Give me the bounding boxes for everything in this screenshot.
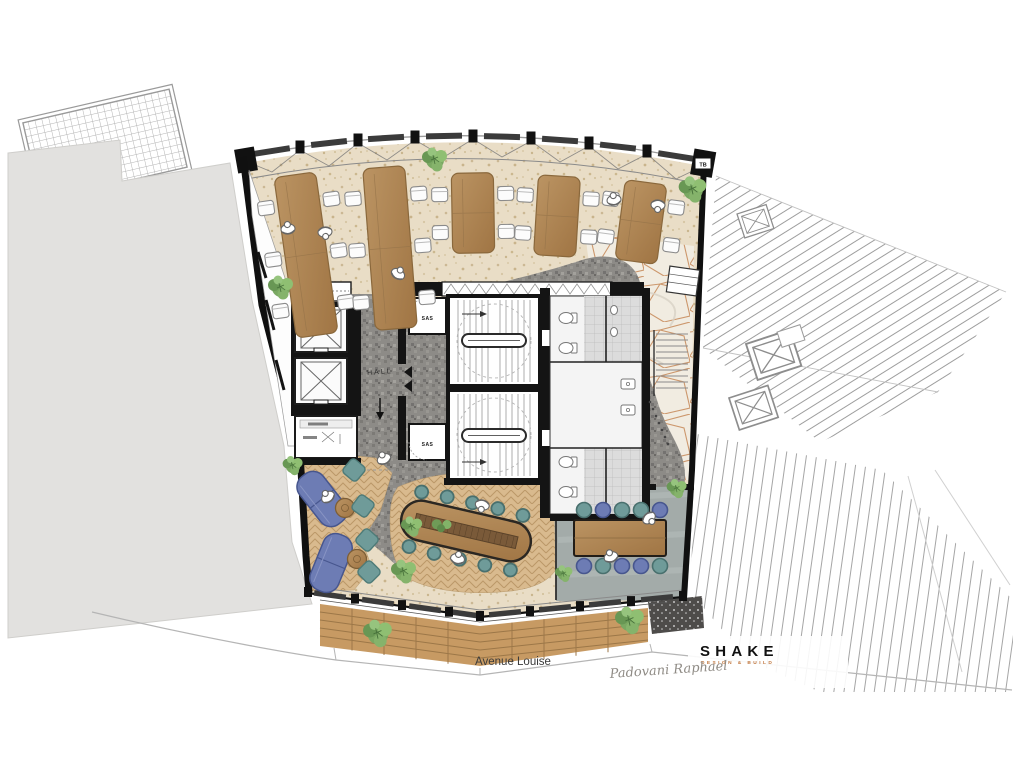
wall-cabinet (666, 266, 699, 296)
neighbor-roof-hatch (690, 176, 1013, 692)
meeting-chair (634, 559, 649, 574)
urinal-icon (611, 306, 618, 315)
street-label: Avenue Louise (475, 656, 551, 668)
toilet-icon (559, 457, 577, 468)
meeting-chair (615, 503, 630, 518)
sink-icon (621, 405, 635, 415)
sas-label: SAS (422, 442, 434, 448)
meeting-chair (615, 559, 630, 574)
sas-vestibule-bottom: SAS (409, 424, 446, 460)
logo-text: SHAKE (700, 643, 778, 660)
meeting-chair (653, 559, 668, 574)
roof-skylight-icon (729, 385, 778, 430)
wc-area (550, 288, 650, 521)
gravel-strip (648, 596, 704, 634)
meeting-chair (577, 503, 592, 518)
meeting-chair (577, 559, 592, 574)
tb-label: TB (699, 163, 706, 169)
elevator-icon (295, 358, 347, 404)
staircase-bottom (448, 390, 540, 480)
toilet-icon (559, 313, 577, 324)
floor-plan-page: SAS SAS HALL (0, 0, 1024, 768)
staircase-top (448, 296, 540, 386)
tb-marker: TB (695, 158, 711, 169)
toilet-icon (559, 343, 577, 354)
sink-icon (621, 379, 635, 389)
storage-room (295, 416, 357, 458)
meeting-chair (596, 503, 611, 518)
meeting-room-furniture (574, 503, 668, 574)
urinal-icon (611, 328, 618, 337)
sas-label: SAS (422, 316, 434, 322)
floor-plan-drawing: SAS SAS HALL (0, 0, 1024, 768)
toilet-icon (559, 487, 577, 498)
